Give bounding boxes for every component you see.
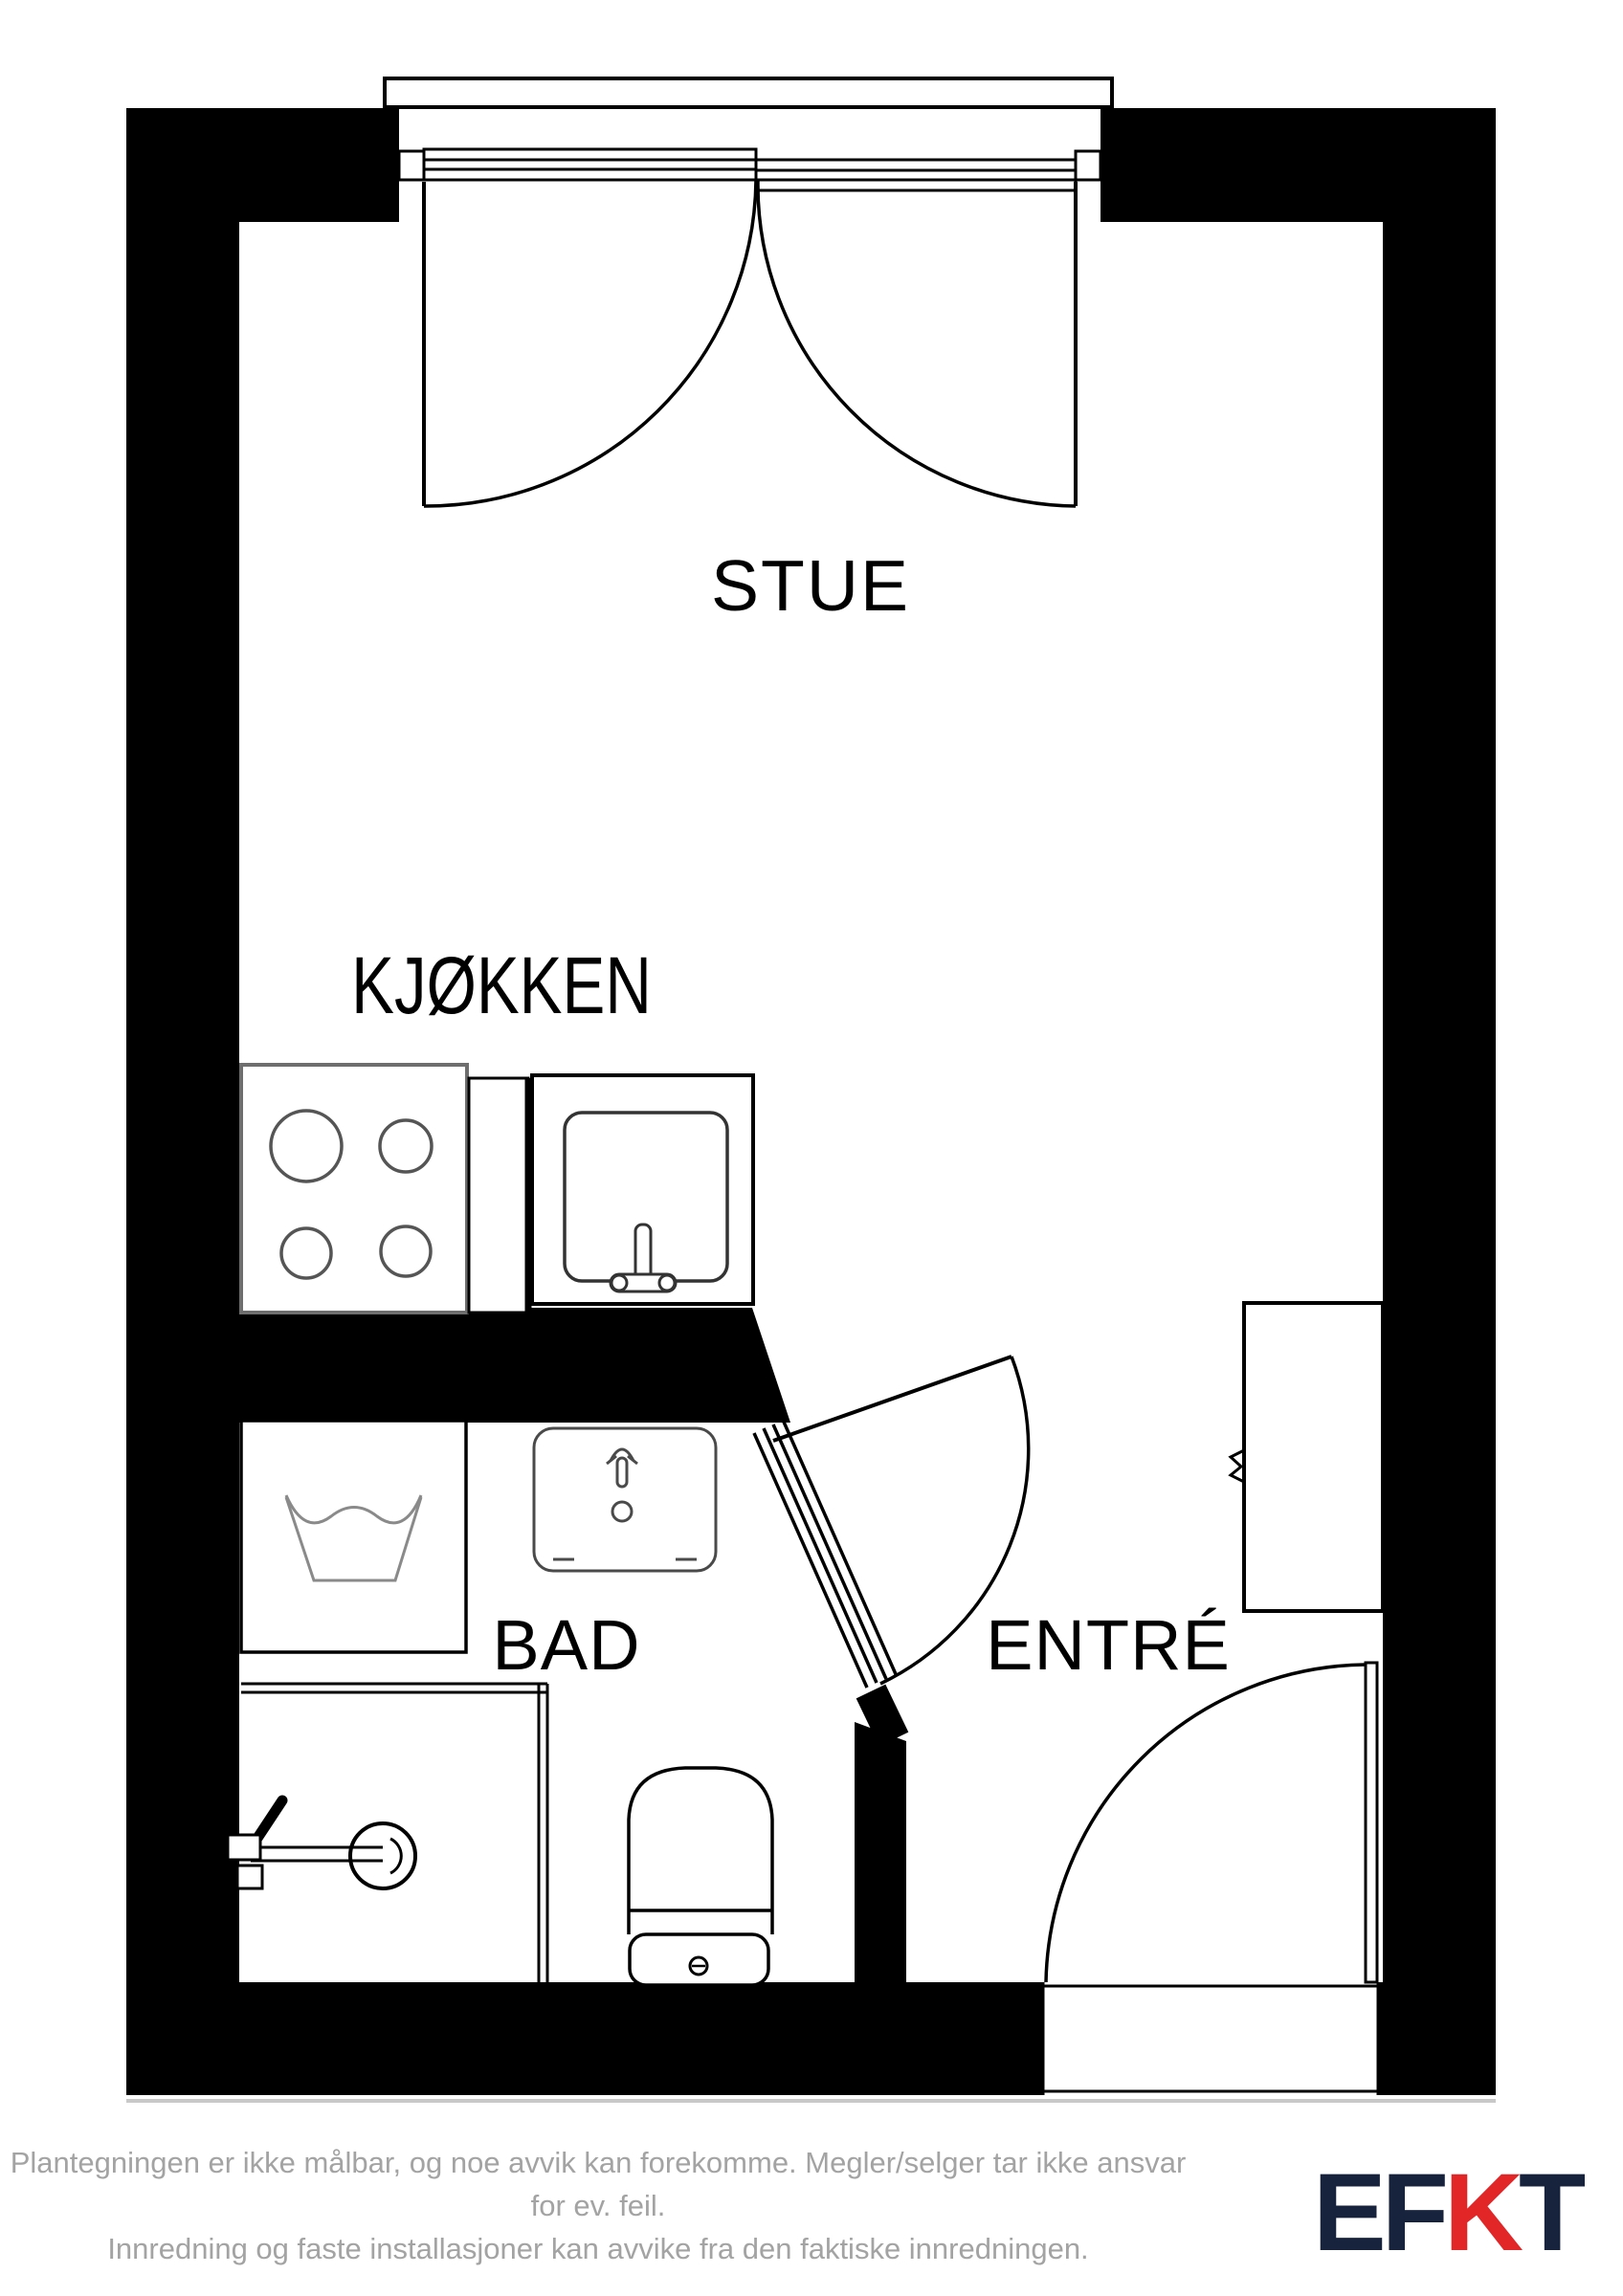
wall-bath-kitchen-divider [239,1308,790,1423]
disclaimer-line-1: Plantegningen er ikke målbar, og noe avv… [10,2141,1187,2227]
floorplan-drawing [0,0,1623,2296]
disclaimer: Plantegningen er ikke målbar, og noe avv… [10,2141,1187,2270]
window-jamb-left [399,151,424,180]
disclaimer-line-2: Innredning og faste installasjoner kan a… [10,2227,1187,2270]
logo-letter-e: E [1313,2152,1382,2274]
wall-right [1383,108,1496,2095]
toilet [629,1768,772,1985]
balcony-platform [385,78,1112,107]
room-label-entre: ENTRÉ [986,1610,1231,1681]
balcony-double-door [399,149,1101,506]
wall-left [126,108,239,2095]
kitchen-cabinet [469,1078,528,1313]
kitchen-stove [241,1065,467,1313]
logo-letter-k: K [1444,2152,1519,2274]
logo-letter-t: T [1519,2152,1581,2274]
burner-bottom-right [381,1226,431,1276]
shower-head-icon [228,1800,415,1888]
shower [228,1684,547,1982]
wall-bottom-left-segment [126,1982,1043,2095]
wall-bath-entry-divider [855,1722,906,1982]
room-label-kjokken: KJØKKEN [351,945,652,1026]
room-label-stue: STUE [711,550,910,622]
window-jamb-right [1076,151,1101,180]
entrance-door [1043,1663,1378,2095]
efkt-logo: EFKT [1313,2158,1581,2268]
burner-top-left [271,1111,342,1181]
logo-letter-f: F [1382,2152,1444,2274]
kitchen-sink-counter [469,1075,753,1313]
bathroom-door-leaf [773,1357,1012,1441]
entrance-door-leaf [1366,1663,1377,1982]
room-label-bad: BAD [492,1610,640,1681]
window-pane-right [756,160,1076,190]
door-swing-arc-right [758,180,1076,506]
bathroom-sink [534,1428,716,1571]
washing-machine [241,1421,466,1652]
window-pane-left [424,149,756,180]
wardrobe [1231,1303,1383,1611]
entrance-door-swing-arc [1046,1665,1366,1982]
burner-top-right [380,1120,432,1172]
door-swing-arc-left [424,180,756,506]
burner-bottom-left [281,1228,331,1278]
wardrobe-hook-icon [1231,1450,1244,1482]
wall-bottom-right-segment [1378,1982,1496,2095]
floorplan-page: STUE KJØKKEN BAD ENTRÉ Plantegningen er … [0,0,1623,2296]
